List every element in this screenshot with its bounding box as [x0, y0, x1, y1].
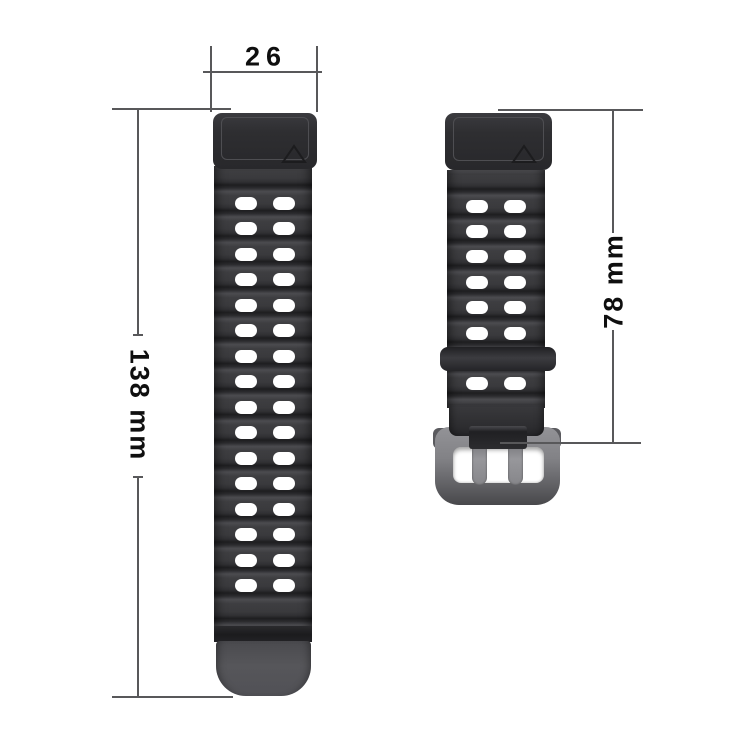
long-length-line-lower — [137, 476, 139, 698]
left-strap-connector — [213, 113, 317, 169]
strap-hole — [235, 452, 257, 465]
strap-hole — [235, 197, 257, 210]
strap-hole — [235, 248, 257, 261]
width-extension-line-right — [316, 46, 318, 112]
strap-hole — [273, 503, 295, 516]
strap-hole — [235, 350, 257, 363]
long-length-extension-bottom — [112, 696, 233, 698]
strap-hole — [273, 477, 295, 490]
keeper-loop — [440, 347, 556, 371]
strap-hole — [504, 250, 526, 263]
strap-hole — [466, 200, 488, 213]
long-length-tick-lower — [133, 476, 143, 478]
long-length-tick-upper — [133, 334, 143, 336]
strap-hole — [235, 273, 257, 286]
strap-hole — [273, 452, 295, 465]
strap-hole — [504, 276, 526, 289]
short-length-extension-top — [498, 109, 643, 111]
strap-hole — [504, 301, 526, 314]
strap-hole — [273, 248, 295, 261]
triangle-icon — [511, 144, 537, 164]
strap-hole — [466, 225, 488, 238]
strap-hole — [273, 324, 295, 337]
long-length-line-upper — [137, 108, 139, 336]
long-length-extension-top — [112, 108, 231, 110]
left-strap-body — [214, 166, 312, 628]
strap-hole — [466, 327, 488, 340]
strap-hole — [235, 375, 257, 388]
strap-hole — [235, 222, 257, 235]
strap-hole — [235, 401, 257, 414]
width-extension-line-left — [210, 46, 212, 112]
strap-hole — [235, 579, 257, 592]
strap-hole — [273, 426, 295, 439]
strap-hole — [273, 197, 295, 210]
strap-hole — [504, 377, 526, 390]
strap-hole — [235, 554, 257, 567]
strap-hole — [466, 377, 488, 390]
strap-hole — [273, 528, 295, 541]
strap-hole — [235, 324, 257, 337]
left-strap-tip — [216, 641, 311, 696]
short-length-line-upper — [612, 109, 614, 233]
watch-band-dimension-diagram: 26 138 mm 78 mm — [0, 0, 750, 750]
strap-hole — [235, 299, 257, 312]
strap-hole — [504, 200, 526, 213]
strap-hole — [273, 273, 295, 286]
buckle-pin-housing — [469, 426, 527, 449]
strap-hole — [235, 477, 257, 490]
short-length-label: 78 mm — [601, 233, 628, 329]
strap-hole — [273, 299, 295, 312]
strap-hole — [504, 225, 526, 238]
right-strap-connector — [445, 113, 552, 170]
long-length-label: 138 mm — [126, 349, 153, 462]
strap-hole — [273, 375, 295, 388]
strap-hole — [273, 579, 295, 592]
short-length-extension-bottom — [500, 442, 641, 444]
strap-hole — [466, 250, 488, 263]
strap-hole — [235, 528, 257, 541]
strap-hole — [273, 401, 295, 414]
width-label: 26 — [245, 44, 287, 71]
right-strap-body — [447, 170, 545, 408]
triangle-icon — [281, 144, 307, 164]
strap-hole — [504, 327, 526, 340]
strap-hole — [466, 276, 488, 289]
left-strap-end-band — [214, 626, 312, 642]
short-length-line-lower — [612, 330, 614, 444]
strap-hole — [235, 426, 257, 439]
strap-hole — [466, 301, 488, 314]
strap-hole — [273, 222, 295, 235]
strap-hole — [273, 554, 295, 567]
strap-hole — [235, 503, 257, 516]
buckle-opening — [453, 447, 544, 483]
strap-hole — [273, 350, 295, 363]
